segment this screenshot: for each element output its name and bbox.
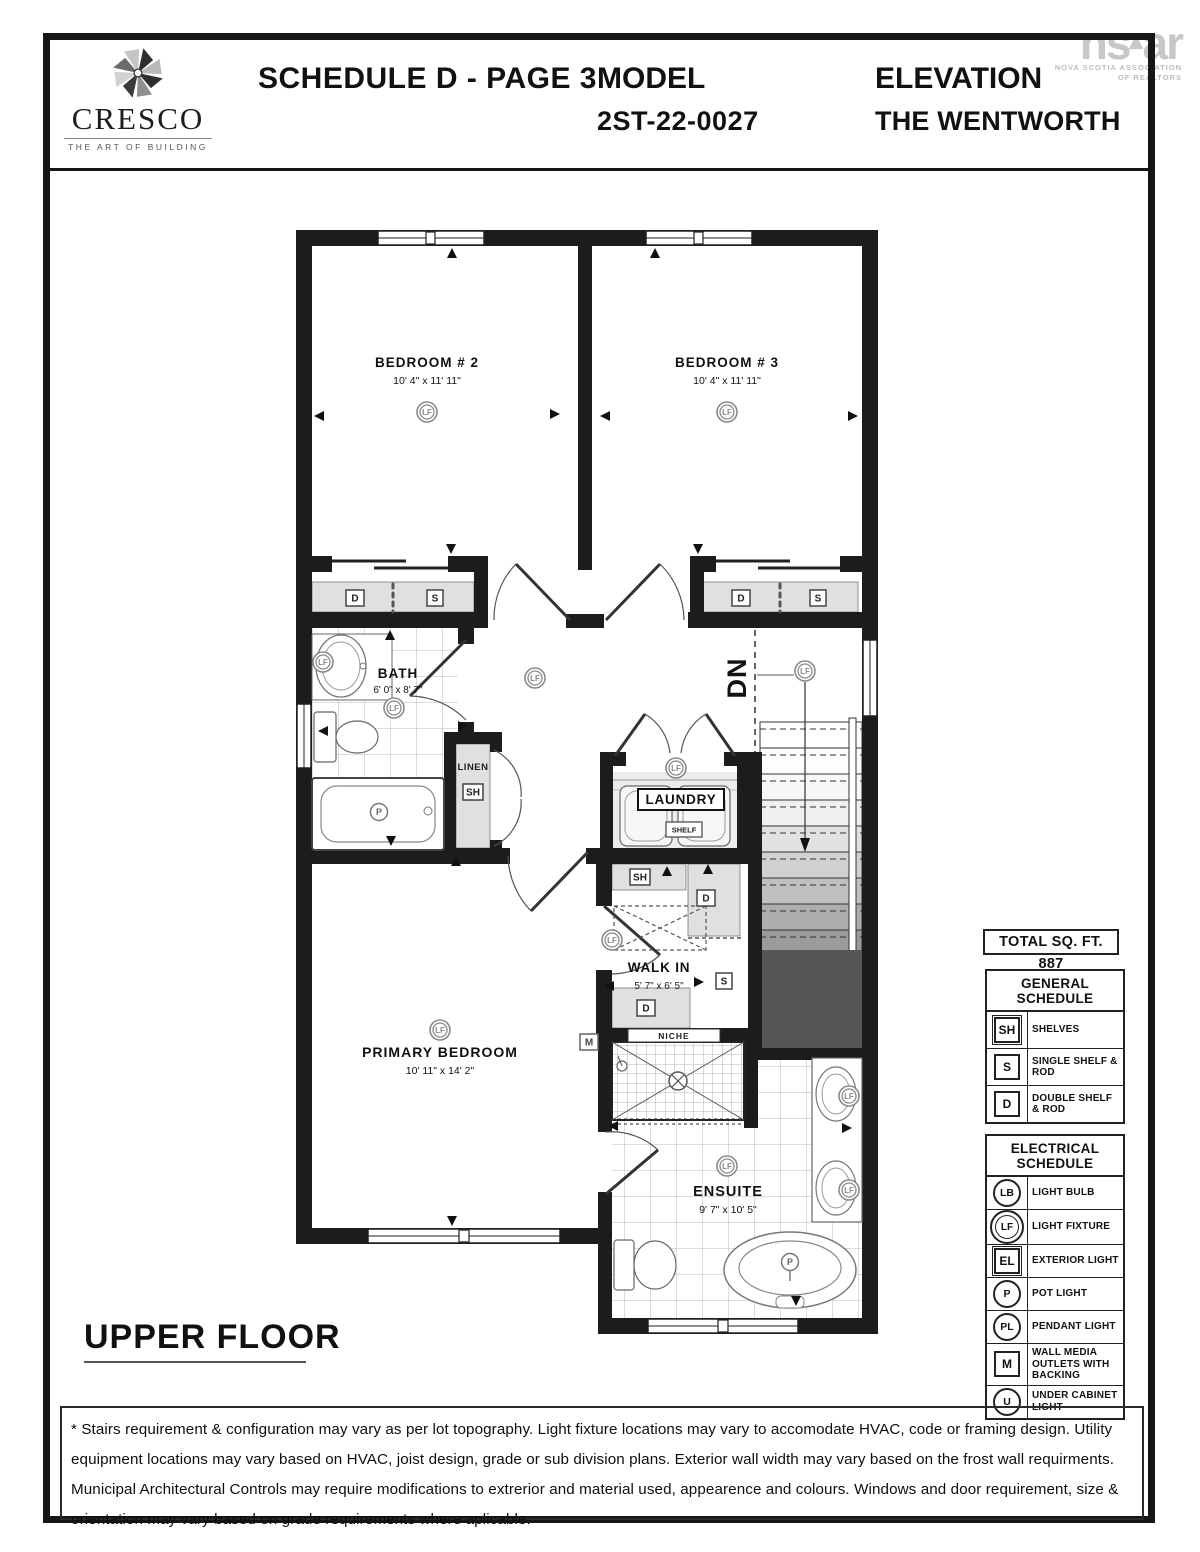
ensuite-toilet: [634, 1241, 676, 1289]
floorplan-page: ns▴ar NOVA SCOTIA ASSOCIATION OF REALTOR…: [0, 0, 1200, 1552]
walkin-label: WALK IN: [628, 960, 691, 975]
ensuite-toilet-tank: [614, 1240, 634, 1290]
ensuite-label: ENSUITE: [693, 1184, 763, 1200]
schedule-row: M WALL MEDIA OUTLETS WITH BACKING: [987, 1344, 1123, 1386]
window-ensuite: [648, 1319, 798, 1333]
bedroom3-dims: 10' 4" x 11' 11": [693, 375, 761, 387]
linen-label: LINEN: [458, 762, 489, 773]
stairs-dn-label: DN: [722, 658, 752, 699]
general-schedule-title: GENERAL SCHEDULE: [987, 971, 1123, 1012]
bath-toilet: [336, 721, 378, 753]
wall-media-outlet-icon: M: [994, 1351, 1020, 1377]
schedule-row-label: POT LIGHT: [1028, 1278, 1123, 1310]
schedule-row-label: EXTERIOR LIGHT: [1028, 1245, 1123, 1277]
electrical-schedule: ELECTRICAL SCHEDULE LB LIGHT BULB LF LIG…: [985, 1134, 1125, 1420]
schedule-row-label: SINGLE SHELF & ROD: [1028, 1049, 1123, 1085]
total-sqft-box: TOTAL SQ. FT. 887: [983, 929, 1119, 955]
bedroom3-label: BEDROOM # 3: [675, 355, 779, 370]
window-bedroom2: [378, 231, 484, 245]
electrical-schedule-title: ELECTRICAL SCHEDULE: [987, 1136, 1123, 1177]
general-schedule: GENERAL SCHEDULE SH SHELVES S SINGLE SHE…: [985, 969, 1125, 1124]
floor-title-underline: [84, 1361, 306, 1363]
window-stairs: [863, 640, 877, 716]
floor-title: UPPER FLOOR: [84, 1318, 341, 1357]
schedule-row: LB LIGHT BULB: [987, 1177, 1123, 1210]
bedroom2-label: BEDROOM # 2: [375, 355, 479, 370]
window-bath: [297, 704, 311, 768]
bedroom2-dims: 10' 4" x 11' 11": [393, 375, 461, 387]
laundry-label: LAUNDRY: [645, 792, 716, 807]
schedule-row-label: WALL MEDIA OUTLETS WITH BACKING: [1028, 1344, 1123, 1385]
laundry-area: LAUNDRY SHELF: [613, 758, 737, 846]
ensuite-dims: 9' 7" x 10' 5": [699, 1204, 757, 1216]
primary-bedroom-label: PRIMARY BEDROOM: [362, 1044, 518, 1060]
pot-light-icon: P: [993, 1280, 1021, 1308]
stair-handrail: [849, 718, 856, 952]
exterior-light-icon: EL: [994, 1248, 1020, 1274]
bath-dims: 6' 0" x 8' 7": [373, 685, 423, 696]
light-fixture-icon: LF: [990, 1210, 1024, 1244]
schedule-row: P POT LIGHT: [987, 1278, 1123, 1311]
stair-void: [758, 950, 862, 1052]
schedule-row-label: PENDANT LIGHT: [1028, 1311, 1123, 1343]
primary-bedroom-dims: 10' 11" x 14' 2": [406, 1065, 475, 1077]
disclaimer-box: * Stairs requirement & configuration may…: [60, 1406, 1144, 1520]
window-bedroom3: [646, 231, 752, 245]
schedule-row: EL EXTERIOR LIGHT: [987, 1245, 1123, 1278]
shelves-icon: SH: [994, 1017, 1020, 1043]
schedule-row: LF LIGHT FIXTURE: [987, 1210, 1123, 1245]
double-shelf-rod-icon: D: [994, 1091, 1020, 1117]
schedule-row: D DOUBLE SHELF & ROD: [987, 1086, 1123, 1122]
schedule-row: S SINGLE SHELF & ROD: [987, 1049, 1123, 1086]
walkin-dims: 5' 7" x 6' 5": [634, 981, 684, 992]
schedule-row-label: DOUBLE SHELF & ROD: [1028, 1086, 1123, 1122]
niche-label: NICHE: [658, 1031, 689, 1041]
laundry-shelf-label: SHELF: [672, 826, 697, 835]
bath-label: BATH: [378, 666, 419, 681]
single-shelf-rod-icon: S: [994, 1054, 1020, 1080]
schedule-row-label: LIGHT BULB: [1028, 1177, 1123, 1209]
schedule-row-label: SHELVES: [1028, 1012, 1123, 1048]
schedule-row-label: LIGHT FIXTURE: [1028, 1210, 1123, 1244]
light-bulb-icon: LB: [993, 1179, 1021, 1207]
bath-toilet-tank: [314, 712, 336, 762]
pendant-light-icon: PL: [993, 1313, 1021, 1341]
schedule-row: SH SHELVES: [987, 1012, 1123, 1049]
window-primary: [368, 1229, 560, 1243]
schedule-row: PL PENDANT LIGHT: [987, 1311, 1123, 1344]
